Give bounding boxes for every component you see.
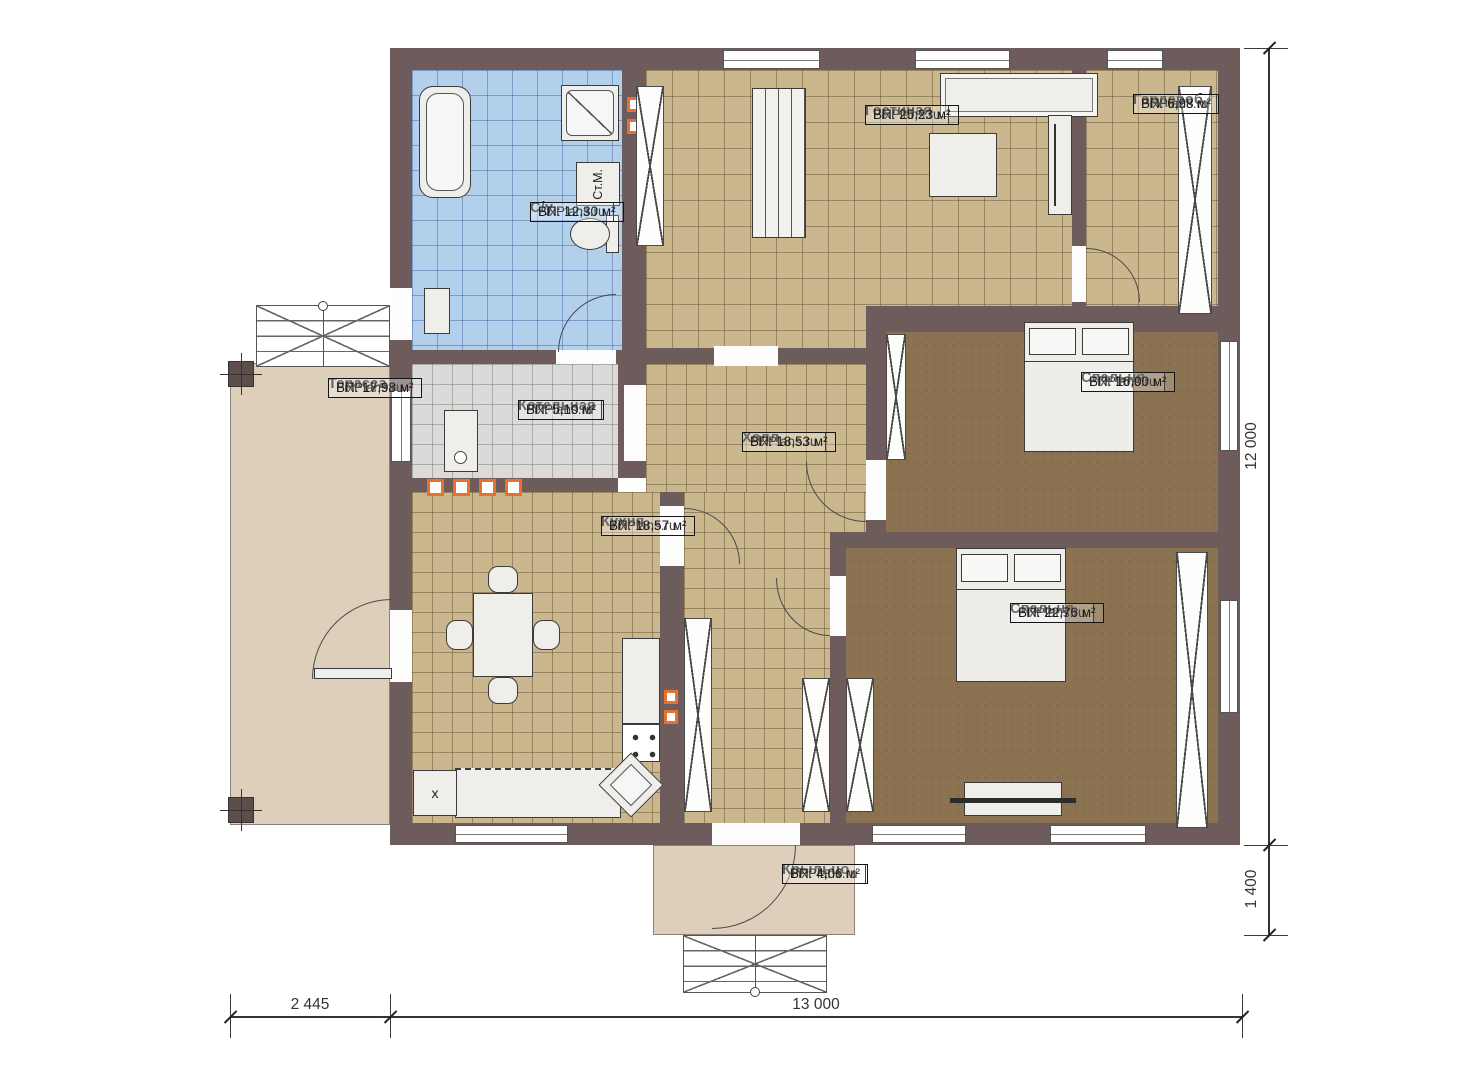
room-area: ВП: 25,23 м²: [865, 105, 959, 125]
radiator-boiler-3: [479, 479, 496, 496]
radiator-boiler-1: [427, 479, 444, 496]
porch-steps: [683, 935, 827, 993]
terrace-deck: [230, 363, 390, 825]
opening-boiler-door: [624, 385, 646, 461]
dim-terrace-width: 2 445: [291, 996, 330, 1014]
toilet-bowl: [570, 218, 610, 250]
opening-wardrobe-door: [1072, 246, 1086, 302]
opening-bathroom-door: [556, 350, 616, 364]
living-sideboard: [940, 73, 1098, 117]
boiler-floor: [412, 364, 618, 478]
room-area: ВП: 18,57 м²: [601, 516, 695, 536]
bedroom1-pillow-right: [1082, 328, 1129, 355]
bedroom2-pillow-left: [961, 554, 1008, 582]
opening-entrance-door: [712, 823, 800, 845]
dim-line-right: [1268, 48, 1270, 935]
living-coffee-table: [929, 133, 997, 197]
dim-house-width: 13 000: [792, 996, 839, 1014]
wardrobe-closet: [1178, 86, 1212, 314]
room-area: ВП: 4,06 м²: [782, 864, 868, 884]
living-closet: [636, 86, 664, 246]
dim-line-bottom: [230, 1016, 1243, 1018]
bedroom2-closet-entry: [846, 678, 874, 812]
room-area: ВП: 16,00 м²: [1081, 372, 1175, 392]
bedroom2-closet: [1176, 552, 1208, 828]
room-area: ВП: 17,98 м²: [328, 378, 422, 398]
window-left-boiler: [391, 390, 411, 462]
room-area: ВП: 22,76 м²: [1010, 603, 1104, 623]
radiator-boiler-2: [453, 479, 470, 496]
bedroom2-tv: [950, 798, 1076, 803]
kitchen-counter-bottom: [455, 768, 621, 818]
window-bottom-bedroom2-right: [1050, 825, 1146, 843]
kitchen-table: [473, 593, 533, 677]
window-top-wardrobe: [1107, 50, 1163, 69]
boiler-unit: [444, 410, 478, 472]
kitchen-counter-right: [622, 638, 660, 724]
opening-living-hall: [714, 346, 778, 366]
wall-bedroom1-bedroom2: [830, 532, 1240, 548]
opening-bedroom2-door: [830, 576, 846, 636]
opening-kitchen-door: [660, 506, 684, 566]
radiator-kitchen-2: [664, 710, 678, 724]
window-right-bedroom1: [1220, 341, 1238, 451]
opening-terrace-door: [390, 610, 412, 682]
radiator-kitchen-1: [664, 690, 678, 704]
kitchen-chair-bottom: [488, 677, 518, 704]
window-bottom-kitchen: [455, 825, 568, 843]
window-top-living-left: [723, 50, 820, 69]
terrace-door-leaf: [314, 668, 392, 679]
bedroom1-closet: [886, 334, 906, 460]
floor-plan-canvas: Ст.М. x: [0, 0, 1473, 1080]
living-shelf-unit: [752, 88, 806, 238]
opening-bedroom1-door: [866, 460, 886, 520]
washing-machine: Ст.М.: [576, 162, 620, 206]
kitchen-chair-left: [446, 620, 473, 650]
room-area: ВП: 5,10 м²: [518, 400, 604, 420]
hall-closet-left: [684, 618, 712, 812]
radiator-boiler-4: [505, 479, 522, 496]
shower: [561, 85, 619, 141]
kitchen-chair-top: [488, 566, 518, 593]
window-right-bedroom2: [1220, 600, 1238, 713]
room-area: ВП: 18,53 м²: [742, 432, 836, 452]
bath-side-door-leaf: [424, 288, 450, 334]
kitchen-sink-box: x: [413, 770, 457, 816]
kitchen-chair-right: [533, 620, 560, 650]
bathtub: [419, 86, 471, 198]
washing-machine-label: Ст.М.: [591, 169, 605, 200]
dim-house-height: 12 000: [1243, 422, 1261, 469]
living-tv-panel: [1048, 115, 1072, 215]
terrace-stairs: [256, 305, 390, 367]
dim-porch-height: 1 400: [1243, 870, 1261, 909]
terrace-post-bottom: [228, 797, 254, 823]
hall-closet-right: [802, 678, 830, 812]
window-top-living-right: [915, 50, 1010, 69]
room-area: ВП: 6,98 м²: [1133, 94, 1219, 114]
bedroom2-pillow-right: [1014, 554, 1061, 582]
kitchen-sink-label: x: [432, 785, 439, 801]
terrace-post-top: [228, 361, 254, 387]
room-area: ВП: 12,30 м²: [530, 202, 624, 222]
bedroom1-pillow-left: [1029, 328, 1076, 355]
window-bottom-bedroom2-left: [872, 825, 966, 843]
opening-bath-side-door: [390, 288, 412, 340]
